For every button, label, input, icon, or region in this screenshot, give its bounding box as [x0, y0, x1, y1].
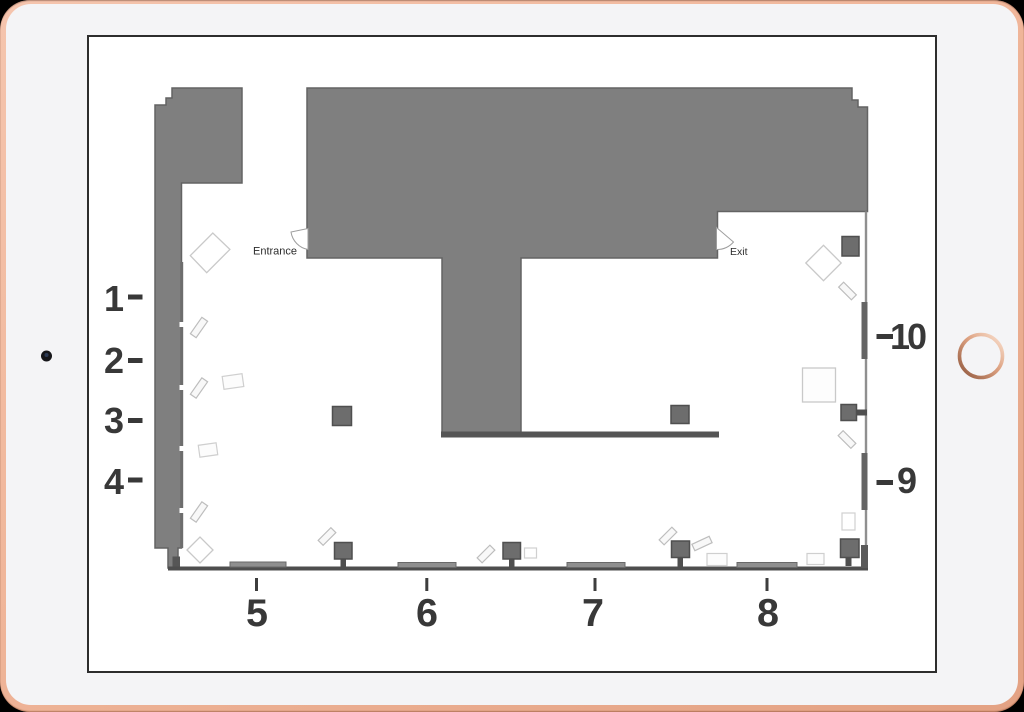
svg-text:Exit: Exit — [730, 246, 748, 258]
svg-text:2: 2 — [104, 340, 124, 381]
svg-text:Entrance: Entrance — [253, 246, 297, 258]
svg-text:3: 3 — [104, 400, 124, 441]
svg-text:9: 9 — [897, 460, 917, 501]
svg-text:6: 6 — [416, 592, 438, 635]
svg-text:1: 1 — [104, 278, 124, 319]
svg-text:0: 0 — [907, 316, 927, 357]
svg-text:5: 5 — [246, 592, 268, 635]
svg-text:7: 7 — [582, 592, 604, 635]
svg-text:8: 8 — [757, 592, 779, 635]
svg-text:4: 4 — [104, 461, 124, 502]
